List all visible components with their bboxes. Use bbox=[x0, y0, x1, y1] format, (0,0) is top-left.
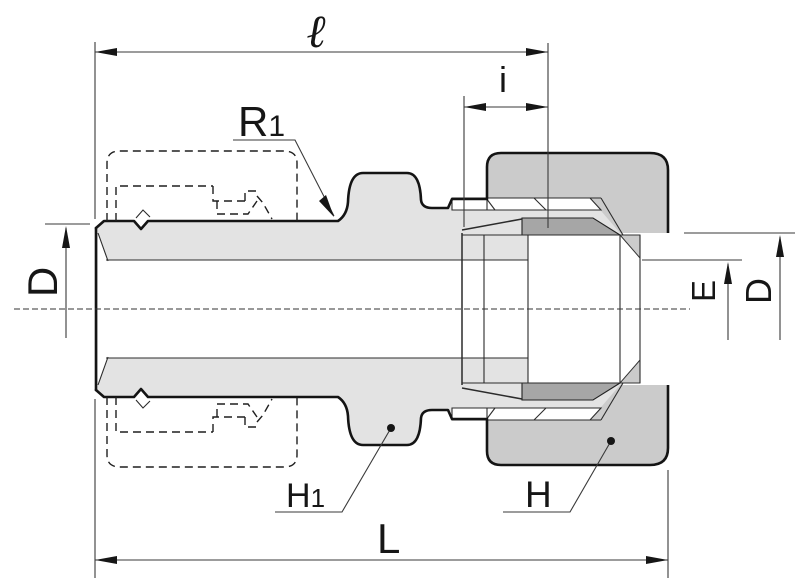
label-i: i bbox=[499, 59, 507, 100]
label-d-right: D bbox=[738, 278, 779, 304]
label-h1: H1 bbox=[286, 477, 325, 515]
drawing-page: ℓ i R1 D E D H1 H L bbox=[0, 0, 800, 584]
leader-h-dot bbox=[607, 437, 615, 445]
label-h: H bbox=[525, 474, 552, 515]
label-ell: ℓ bbox=[306, 4, 326, 58]
label-r1: R1 bbox=[238, 98, 285, 145]
fitting-section-diagram: ℓ i R1 D E D H1 H L bbox=[0, 0, 800, 584]
leader-r1-arrow bbox=[319, 195, 334, 217]
label-d-left: D bbox=[19, 267, 66, 297]
label-e: E bbox=[685, 280, 722, 302]
leader-h1-dot bbox=[387, 424, 395, 432]
label-l: L bbox=[377, 515, 400, 562]
